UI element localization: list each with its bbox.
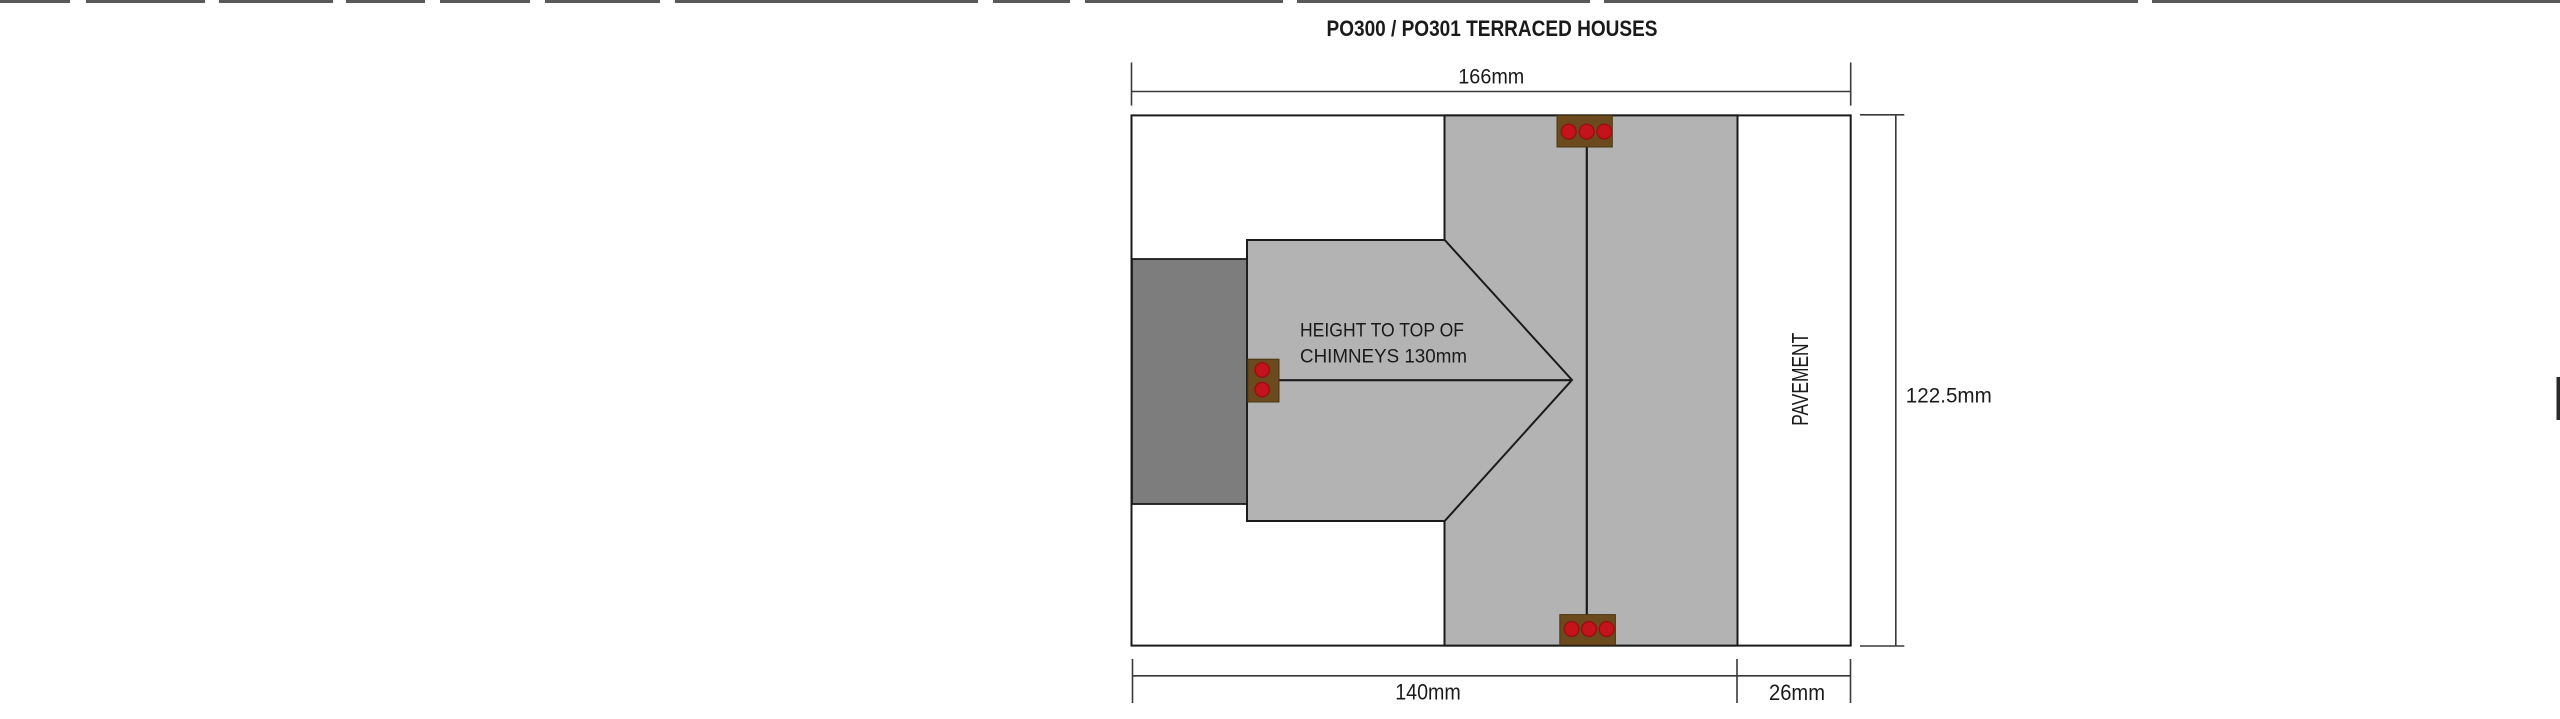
svg-text:122.5mm: 122.5mm <box>1906 384 1992 408</box>
svg-text:140mm: 140mm <box>1395 680 1461 705</box>
svg-text:PAVEMENT: PAVEMENT <box>1787 333 1813 426</box>
svg-text:HEIGHT TO TOP OF: HEIGHT TO TOP OF <box>1300 319 1464 341</box>
svg-text:CHIMNEYS 130mm: CHIMNEYS 130mm <box>1300 346 1467 368</box>
svg-text:26mm: 26mm <box>1769 680 1825 705</box>
svg-text:166mm: 166mm <box>1458 64 1524 88</box>
svg-text:PO300 / PO301 TERRACED HOUSES: PO300 / PO301 TERRACED HOUSES <box>1327 16 1658 41</box>
